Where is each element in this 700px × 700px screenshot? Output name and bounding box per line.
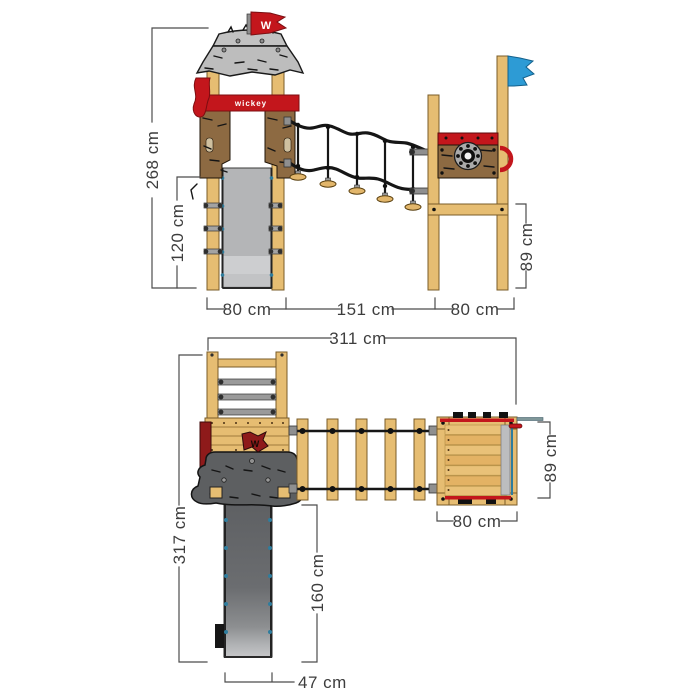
plan-view: W [170, 329, 560, 692]
brand-beam: wickey [203, 95, 299, 111]
playground-dimension-diagram: wickey W [0, 0, 700, 700]
dim-total-width-label: 311 cm [329, 329, 387, 348]
left-tower: wickey W [191, 12, 303, 290]
plan-bridge [289, 419, 437, 500]
plan-flag-monogram: W [251, 439, 260, 449]
deck-side-rod [517, 418, 543, 421]
dim-slide-width: 47 cm [225, 673, 347, 692]
blue-flag [508, 56, 534, 86]
dim-platform-height: 120 cm [168, 177, 200, 288]
porthole [455, 143, 482, 170]
plan-ladder [207, 352, 287, 422]
plan-deck [437, 412, 543, 505]
elevation-view: wickey W [143, 12, 536, 319]
slide-front [221, 168, 274, 288]
dim-deck-width-label: 80 cm [453, 512, 502, 531]
rope-bridge [284, 117, 429, 210]
dim-deck-width: 80 cm [437, 512, 517, 531]
right-tower-post-right [497, 56, 508, 290]
dim-right-width-label: 80 cm [451, 300, 500, 319]
flag-monogram: W [261, 20, 272, 32]
rope-knots [296, 123, 415, 191]
dim-platform-height-label: 120 cm [168, 204, 187, 263]
dim-total-depth-label: 317 cm [170, 506, 189, 565]
dim-deck-depth-label: 89 cm [541, 434, 560, 483]
bridge-top-rope [290, 121, 429, 152]
dim-total-depth: 317 cm [170, 355, 207, 662]
deck-planks [445, 425, 507, 496]
dim-deck-height: 89 cm [516, 204, 536, 288]
deck-red-rail-top [440, 419, 514, 423]
dim-total-height-label: 268 cm [143, 131, 162, 190]
deck-red-handle [509, 424, 522, 428]
slide-side-guard [215, 624, 224, 648]
deck-crossbar [428, 204, 508, 215]
brand-logo-text: wickey [234, 99, 267, 108]
dim-slide-width-label: 47 cm [298, 673, 347, 692]
dim-bottom-row: 80 cm 151 cm 80 cm [207, 298, 514, 319]
dim-bridge-span-label: 151 cm [337, 300, 396, 319]
rope-hook [191, 184, 197, 199]
dim-deck-depth: 89 cm [538, 422, 560, 498]
red-flag: W [247, 12, 286, 35]
dim-left-width-label: 80 cm [223, 300, 272, 319]
dim-slide-run-label: 160 cm [308, 554, 327, 613]
dim-slide-run: 160 cm [302, 505, 327, 662]
deck-panel-edge [501, 425, 510, 495]
dim-deck-height-label: 89 cm [517, 223, 536, 272]
plan-slide [215, 503, 272, 657]
right-tower-post-left [428, 95, 439, 290]
diagram-svg: wickey W [0, 0, 700, 700]
deck-red-rail-bottom [445, 496, 511, 500]
